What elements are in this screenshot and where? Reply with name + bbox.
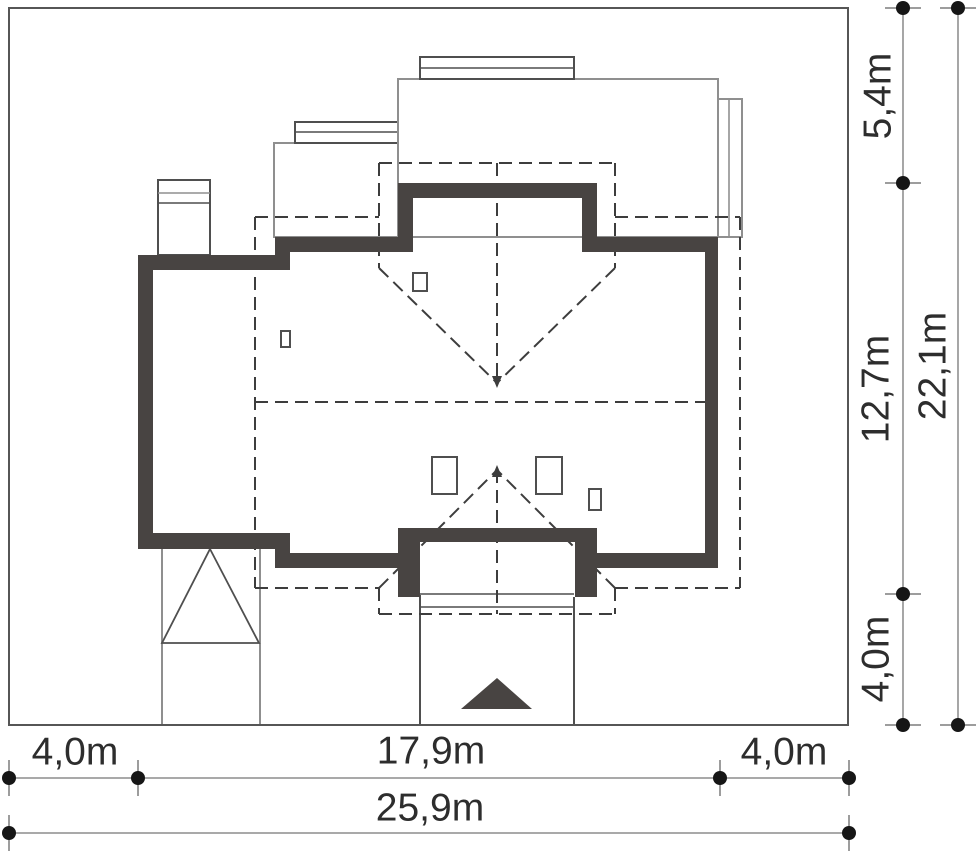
- dimension-label-right-total: 22,1m: [914, 312, 953, 420]
- wall-main-top-left: [275, 237, 398, 252]
- wall-projection-left: [398, 183, 413, 252]
- dim-dot: [2, 771, 16, 785]
- wall-left-wing-bottom: [138, 533, 290, 549]
- dimension-label-right-bottom: 4,0m: [857, 616, 896, 703]
- wall-projection-top: [398, 183, 597, 198]
- dimension-label-right-middle: 12,7m: [857, 335, 896, 443]
- skylight-window-1: [413, 273, 427, 291]
- skylight-window-3: [432, 457, 457, 494]
- dimension-label-bottom-center: 17,9m: [377, 732, 485, 771]
- dimension-label-bottom-left: 4,0m: [32, 733, 119, 772]
- wall-step-bottom: [275, 533, 290, 568]
- dim-dot: [896, 718, 910, 732]
- wall-left-wing-top: [138, 255, 290, 270]
- site-plan: 5,4m 12,7m 4,0m 22,1m 4,0m 17,9m 4,0m 25…: [0, 0, 977, 853]
- dim-dot: [896, 587, 910, 601]
- wall-main-top-right: [597, 237, 718, 252]
- wall-projection-right: [582, 183, 597, 252]
- dim-dot: [2, 826, 16, 840]
- skylight-window-2: [281, 331, 290, 347]
- dim-dot: [713, 771, 727, 785]
- skylight-window-4: [536, 457, 562, 494]
- dimension-label-right-top: 5,4m: [859, 53, 898, 140]
- dim-dot: [131, 771, 145, 785]
- garage-outline: [398, 79, 718, 237]
- wall-main-bottom-left: [275, 553, 398, 568]
- wall-main-bottom-right: [597, 553, 718, 568]
- dim-dot: [951, 718, 965, 732]
- wall-right: [705, 237, 718, 568]
- dim-dot: [896, 1, 910, 15]
- dim-dot: [842, 826, 856, 840]
- dim-dot: [896, 176, 910, 190]
- dimension-label-bottom-total: 25,9m: [376, 789, 484, 828]
- chimney: [158, 180, 210, 255]
- site-plan-canvas: [0, 0, 977, 853]
- porch-wall-top: [398, 528, 597, 542]
- skylight-window-5: [589, 489, 601, 510]
- chimney-outline: [158, 180, 210, 255]
- wall-left: [138, 255, 153, 549]
- dim-dot: [842, 771, 856, 785]
- dimension-label-bottom-right: 4,0m: [741, 733, 828, 772]
- dim-dot: [951, 1, 965, 15]
- porch-wall-left: [398, 528, 420, 597]
- porch-wall-right: [575, 528, 597, 597]
